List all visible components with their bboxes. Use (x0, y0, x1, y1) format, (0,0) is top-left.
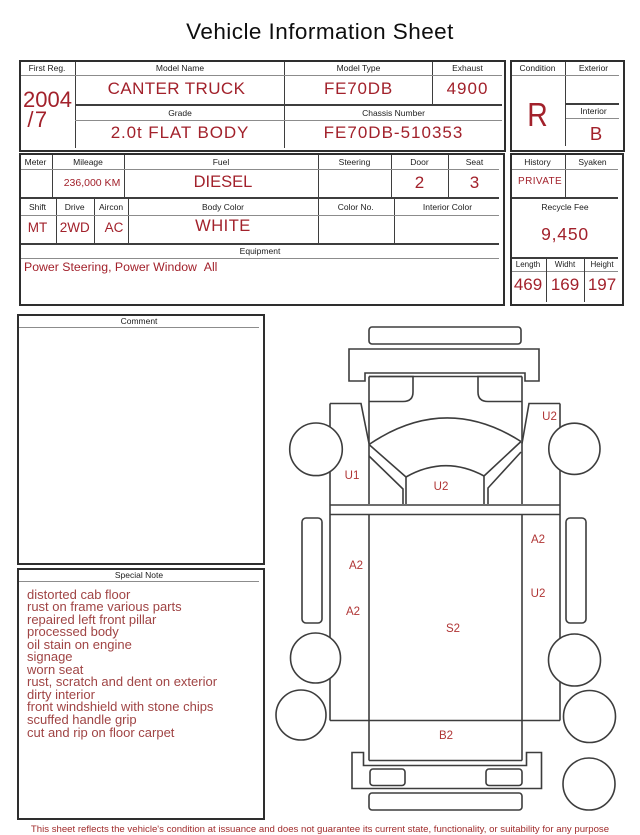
svg-text:U1: U1 (345, 470, 360, 482)
svg-text:U2: U2 (542, 411, 557, 423)
svg-text:S2: S2 (446, 623, 460, 635)
svg-text:A2: A2 (346, 606, 360, 618)
svg-text:U2: U2 (434, 481, 449, 493)
svg-text:B2: B2 (439, 730, 453, 742)
svg-text:U2: U2 (531, 588, 546, 600)
svg-text:A2: A2 (349, 560, 363, 572)
svg-text:A2: A2 (531, 534, 545, 546)
